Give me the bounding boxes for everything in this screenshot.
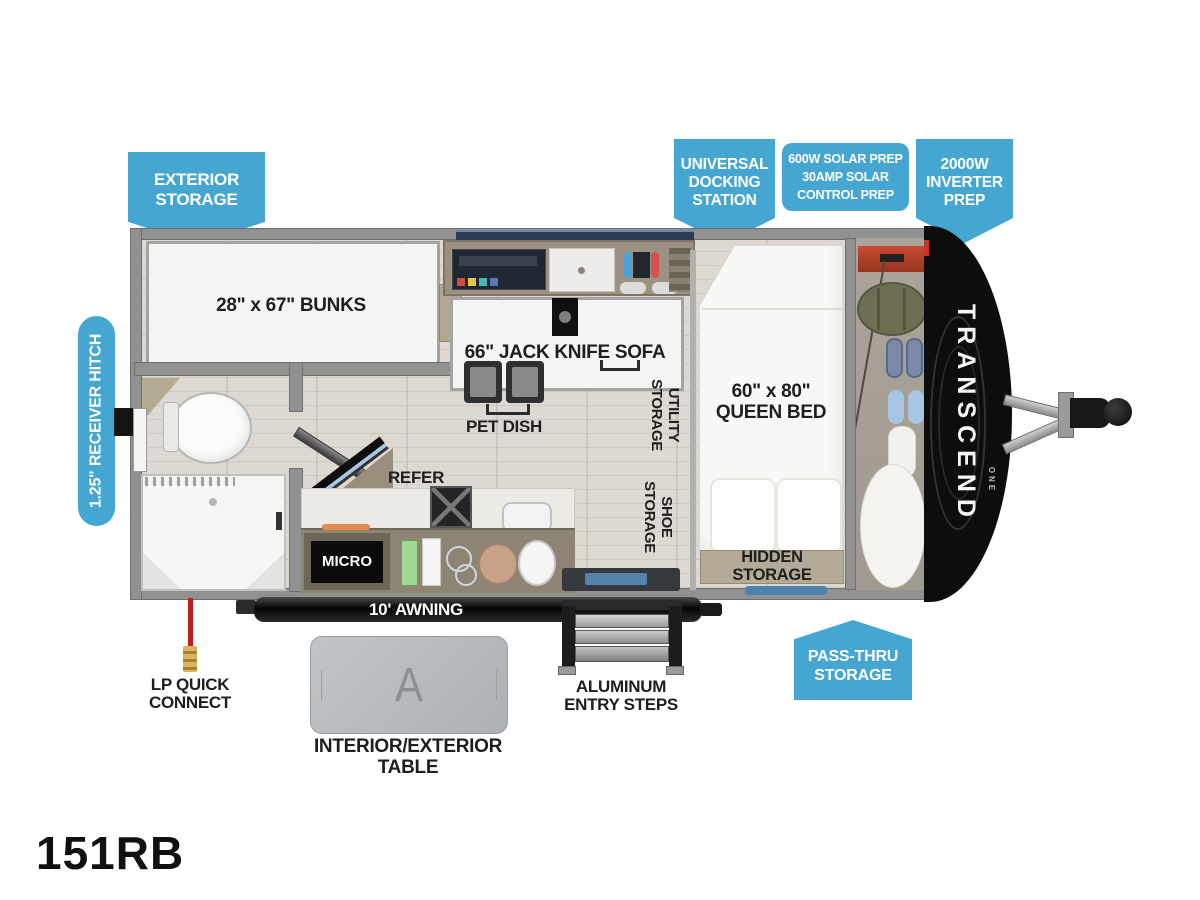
shower-handle xyxy=(276,512,282,530)
bunks-label: 28" x 67" BUNKS xyxy=(166,296,416,317)
shoe-storage-label: SHOE STORAGE xyxy=(635,457,675,577)
pet-dish-left xyxy=(464,361,502,403)
pet-dish-label: PET DISH xyxy=(454,418,554,436)
pass-thru-divider xyxy=(845,238,856,590)
game-display xyxy=(452,249,546,290)
bed-mat xyxy=(745,586,827,595)
callout-receiver-hitch: 1.25" RECEIVER HITCH xyxy=(78,316,115,526)
table: A xyxy=(310,636,508,734)
queen-bed-label: 60" x 80" QUEEN BED xyxy=(700,382,842,423)
shower-drain xyxy=(209,498,217,506)
awning-label: 10' AWNING xyxy=(336,601,496,619)
callout-pass-thru-label: PASS-THRU STORAGE xyxy=(808,648,898,686)
white-towel xyxy=(422,538,441,586)
front-cap: TRANSCEND ONE xyxy=(924,226,1012,602)
cabinet-white-panel xyxy=(549,248,615,292)
pet-dish-right xyxy=(506,361,544,403)
brand-name: TRANSCEND xyxy=(948,264,980,564)
pet-dish-bracket xyxy=(486,404,530,415)
bed-pillow-left xyxy=(710,478,776,554)
hidden-storage-label: HIDDEN STORAGE xyxy=(701,549,843,585)
controller-1 xyxy=(620,282,646,294)
entry-steps xyxy=(562,600,682,676)
table-label: INTERIOR/EXTERIOR TABLE xyxy=(298,737,518,778)
model-name: 151RB xyxy=(36,826,184,880)
decor-swirls-2 xyxy=(455,564,477,586)
callout-inverter-prep-label: 2000W INVERTER PREP xyxy=(926,156,1003,211)
joycon-red xyxy=(651,252,659,278)
entry-mat xyxy=(562,568,680,591)
callout-solar-prep: 600W SOLAR PREP 30AMP SOLAR CONTROL PREP xyxy=(782,143,909,211)
micro-label: MICRO xyxy=(322,554,372,570)
bed-pillow-right xyxy=(776,478,842,554)
callout-universal-docking-label: UNIVERSAL DOCKING STATION xyxy=(681,156,769,211)
brand-line: ONE xyxy=(984,460,996,500)
awning-end-right xyxy=(700,603,722,616)
kitchen-sink xyxy=(518,540,556,586)
receiver-hitch xyxy=(114,408,134,436)
callout-solar-prep-label: 600W SOLAR PREP 30AMP SOLAR CONTROL PREP xyxy=(788,150,902,204)
awning-end-left xyxy=(236,600,256,614)
slide-1 xyxy=(888,390,904,424)
callout-receiver-hitch-label: 1.25" RECEIVER HITCH xyxy=(87,334,106,508)
hidden-storage: HIDDEN STORAGE xyxy=(700,550,844,584)
toilet xyxy=(170,392,252,464)
duffel-bag xyxy=(857,282,927,336)
slide-2 xyxy=(908,390,924,424)
steps-label: ALUMINUM ENTRY STEPS xyxy=(550,678,692,715)
sofa-table-bracket xyxy=(600,360,640,371)
stove xyxy=(430,486,472,528)
lp-fitting xyxy=(183,646,197,672)
switch-panel xyxy=(669,248,691,292)
toilet-tank xyxy=(163,402,179,452)
floorplan-page: EXTERIOR STORAGE UNIVERSAL DOCKING STATI… xyxy=(0,0,1200,900)
guitar-case-body xyxy=(860,464,926,588)
pass-thru-area xyxy=(856,238,928,590)
cutting-board xyxy=(478,543,518,585)
gear-red-box xyxy=(858,246,926,272)
towel-bar xyxy=(322,524,370,530)
callout-exterior-storage-label: EXTERIOR STORAGE xyxy=(154,170,239,210)
coupler-ball xyxy=(1104,398,1132,426)
bed-rail xyxy=(690,250,696,590)
lp-label: LP QUICK CONNECT xyxy=(130,676,250,713)
sneaker-2 xyxy=(906,338,923,378)
callout-pass-thru: PASS-THRU STORAGE xyxy=(794,620,912,700)
refer-label: REFER xyxy=(385,469,447,487)
green-towel xyxy=(401,540,418,586)
shower-corner-left xyxy=(143,553,181,589)
shower-rail xyxy=(145,477,235,486)
lp-line xyxy=(188,598,193,648)
tail-light xyxy=(924,240,929,256)
joycon-dock xyxy=(633,252,650,278)
bath-wall-stub xyxy=(289,362,303,412)
table-logo: A xyxy=(395,657,423,712)
shower-corner-right xyxy=(246,553,284,589)
entertainment-cabinet xyxy=(443,240,695,296)
sneaker-1 xyxy=(886,338,903,378)
joycon-blue xyxy=(624,252,632,278)
shower xyxy=(141,474,286,591)
bath-window xyxy=(133,408,147,472)
microwave: MICRO xyxy=(311,541,383,583)
sofa-tv-panel xyxy=(552,298,578,336)
